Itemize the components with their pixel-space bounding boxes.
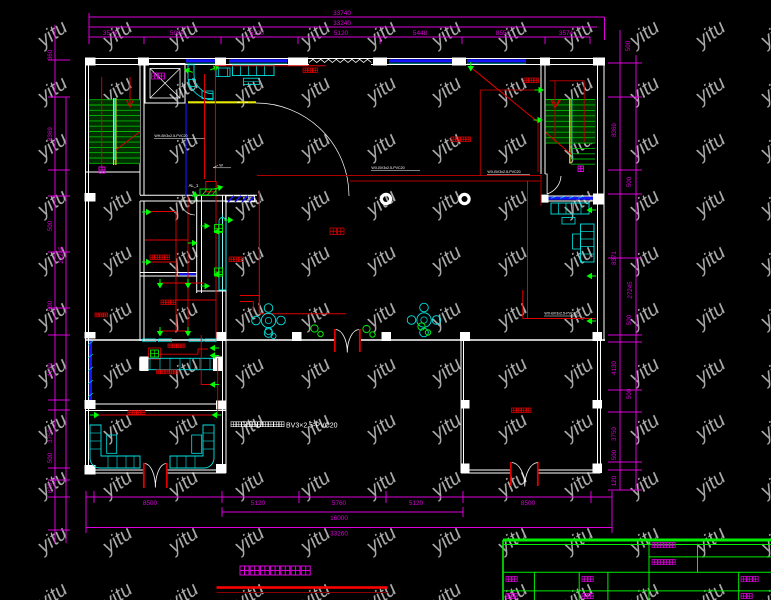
svg-text:22245: 22245: [58, 246, 65, 264]
svg-text:4130: 4130: [611, 361, 618, 375]
svg-text:16000: 16000: [330, 515, 348, 522]
svg-text:5120: 5120: [334, 30, 349, 37]
svg-text:4130: 4130: [47, 363, 54, 377]
svg-text:8369: 8369: [47, 127, 54, 141]
svg-text:WX-BV3x2.5-PVC20: WX-BV3x2.5-PVC20: [544, 312, 577, 316]
svg-text:5094: 5094: [170, 30, 185, 37]
svg-text:AL_1: AL_1: [189, 183, 199, 188]
svg-text:3574: 3574: [559, 30, 574, 37]
svg-text:500: 500: [47, 220, 54, 231]
svg-text:500: 500: [611, 449, 618, 460]
svg-text:3750: 3750: [611, 427, 618, 441]
svg-text:33240: 33240: [333, 20, 351, 27]
svg-text:8500: 8500: [143, 500, 158, 507]
svg-text:3574: 3574: [103, 30, 118, 37]
svg-text:500: 500: [626, 388, 633, 399]
svg-text:500: 500: [47, 300, 54, 311]
svg-text:33260: 33260: [330, 531, 348, 538]
svg-text:830: 830: [47, 482, 54, 493]
svg-text:500: 500: [47, 452, 54, 463]
svg-text:5120: 5120: [409, 500, 424, 507]
svg-text:500: 500: [626, 176, 633, 187]
svg-text:360: 360: [47, 49, 54, 60]
svg-text:8500: 8500: [521, 500, 536, 507]
svg-text:5120: 5120: [251, 500, 266, 507]
svg-text:27245: 27245: [627, 281, 634, 299]
svg-text:5120: 5120: [250, 30, 265, 37]
svg-text:3750: 3750: [47, 429, 54, 443]
svg-text:120: 120: [611, 475, 618, 486]
svg-text:WX-BV3x2.5-PVC20: WX-BV3x2.5-PVC20: [487, 170, 520, 174]
svg-text:500: 500: [626, 314, 633, 325]
svg-text:BV3×2.5-PVC20: BV3×2.5-PVC20: [286, 422, 338, 429]
svg-text:W: W: [219, 164, 223, 168]
svg-text:WH-BV3x2.5-PVC20: WH-BV3x2.5-PVC20: [154, 134, 187, 138]
svg-text:8369: 8369: [611, 123, 618, 137]
svg-text:8371: 8371: [611, 251, 618, 265]
svg-text:500: 500: [625, 40, 632, 51]
svg-text:WX-BV3x2.5-PVC20: WX-BV3x2.5-PVC20: [371, 166, 404, 170]
svg-text:8550: 8550: [496, 30, 511, 37]
svg-text:5448: 5448: [413, 30, 428, 37]
svg-text:33740: 33740: [333, 10, 351, 17]
svg-text:5760: 5760: [332, 500, 347, 507]
